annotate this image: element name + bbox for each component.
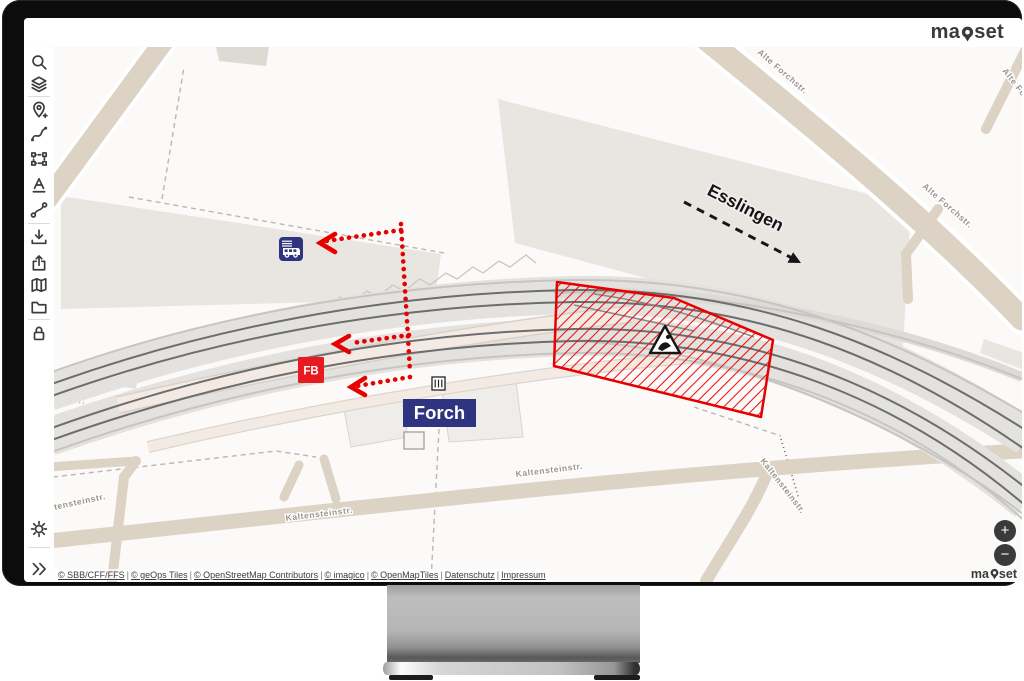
station-pictogram — [432, 377, 445, 390]
attribution-link[interactable]: Datenschutz — [445, 570, 495, 580]
attribution-separator: | — [190, 570, 192, 580]
zoom-out-button[interactable]: − — [994, 544, 1016, 566]
attribution-bar: © SBB/CFF/FFS|© geOps Tiles|© OpenStreet… — [54, 569, 550, 581]
collapse-chevrons-icon[interactable] — [30, 560, 48, 578]
mapset-watermark: maset — [971, 566, 1017, 581]
logo-text-suffix: set — [974, 21, 1004, 44]
bus-replacement-icon[interactable] — [279, 237, 303, 261]
fb-label: FB — [303, 366, 318, 378]
attribution-link[interactable]: © OpenStreetMap Contributors — [194, 570, 318, 580]
map-canvas[interactable]: Alte Forchstr. Alte Forchstr. Alte Forch… — [54, 47, 1022, 582]
street-label: Kaltensteinstr. — [515, 461, 583, 479]
app-header: maset — [24, 18, 1022, 48]
watermark-suffix: set — [999, 567, 1017, 581]
monitor-base — [383, 662, 640, 675]
sidebar-divider — [28, 223, 50, 224]
download-icon[interactable] — [30, 228, 48, 246]
watermark-prefix: ma — [971, 567, 989, 581]
attribution-link[interactable]: © OpenMapTiles — [371, 570, 438, 580]
connect-points-icon[interactable] — [30, 201, 48, 219]
text-tool-icon[interactable] — [30, 176, 48, 194]
sidebar-divider — [28, 547, 50, 548]
search-icon[interactable] — [30, 53, 48, 71]
attribution-link[interactable]: © SBB/CFF/FFS — [58, 570, 125, 580]
attribution-separator: | — [367, 570, 369, 580]
lock-icon[interactable] — [30, 324, 48, 342]
add-location-icon[interactable] — [30, 101, 48, 119]
monitor-stand — [387, 585, 640, 663]
folder-icon[interactable] — [30, 298, 48, 316]
screen: maset — [24, 18, 1022, 582]
mapset-logo: maset — [931, 21, 1004, 44]
street-label: Kaltensteinstr. — [54, 491, 107, 515]
attribution-link[interactable]: © geOps Tiles — [131, 570, 188, 580]
attribution-separator: | — [497, 570, 499, 580]
attribution-separator: | — [440, 570, 442, 580]
share-icon[interactable] — [30, 254, 48, 272]
tool-sidebar — [24, 47, 55, 582]
sidebar-divider — [28, 96, 50, 97]
fb-badge[interactable]: FB — [298, 357, 324, 383]
settings-gear-icon[interactable] — [30, 520, 48, 538]
attribution-separator: | — [127, 570, 129, 580]
logo-text-prefix: ma — [931, 21, 961, 44]
map-svg: Alte Forchstr. Alte Forchstr. Alte Forch… — [54, 47, 1022, 582]
sidebar-divider — [28, 319, 50, 320]
layers-icon[interactable] — [30, 75, 48, 93]
desktop-stage: { "header": { "logo_prefix": "ma", "logo… — [0, 0, 1024, 681]
map-pin-icon — [961, 24, 974, 44]
attribution-separator: | — [320, 570, 322, 580]
attribution-link[interactable]: © imagico — [325, 570, 365, 580]
monitor-foot-left — [389, 675, 433, 680]
station-label-forch[interactable]: Forch — [403, 399, 476, 427]
select-area-icon[interactable] — [30, 150, 48, 168]
station-label-text: Forch — [414, 402, 465, 423]
attribution-link[interactable]: Impressum — [501, 570, 546, 580]
monitor-foot-right — [594, 675, 640, 680]
zoom-in-button[interactable]: + — [994, 520, 1016, 542]
draw-line-icon[interactable] — [30, 125, 48, 143]
map-pin-icon — [990, 567, 999, 581]
map-icon[interactable] — [30, 276, 48, 294]
